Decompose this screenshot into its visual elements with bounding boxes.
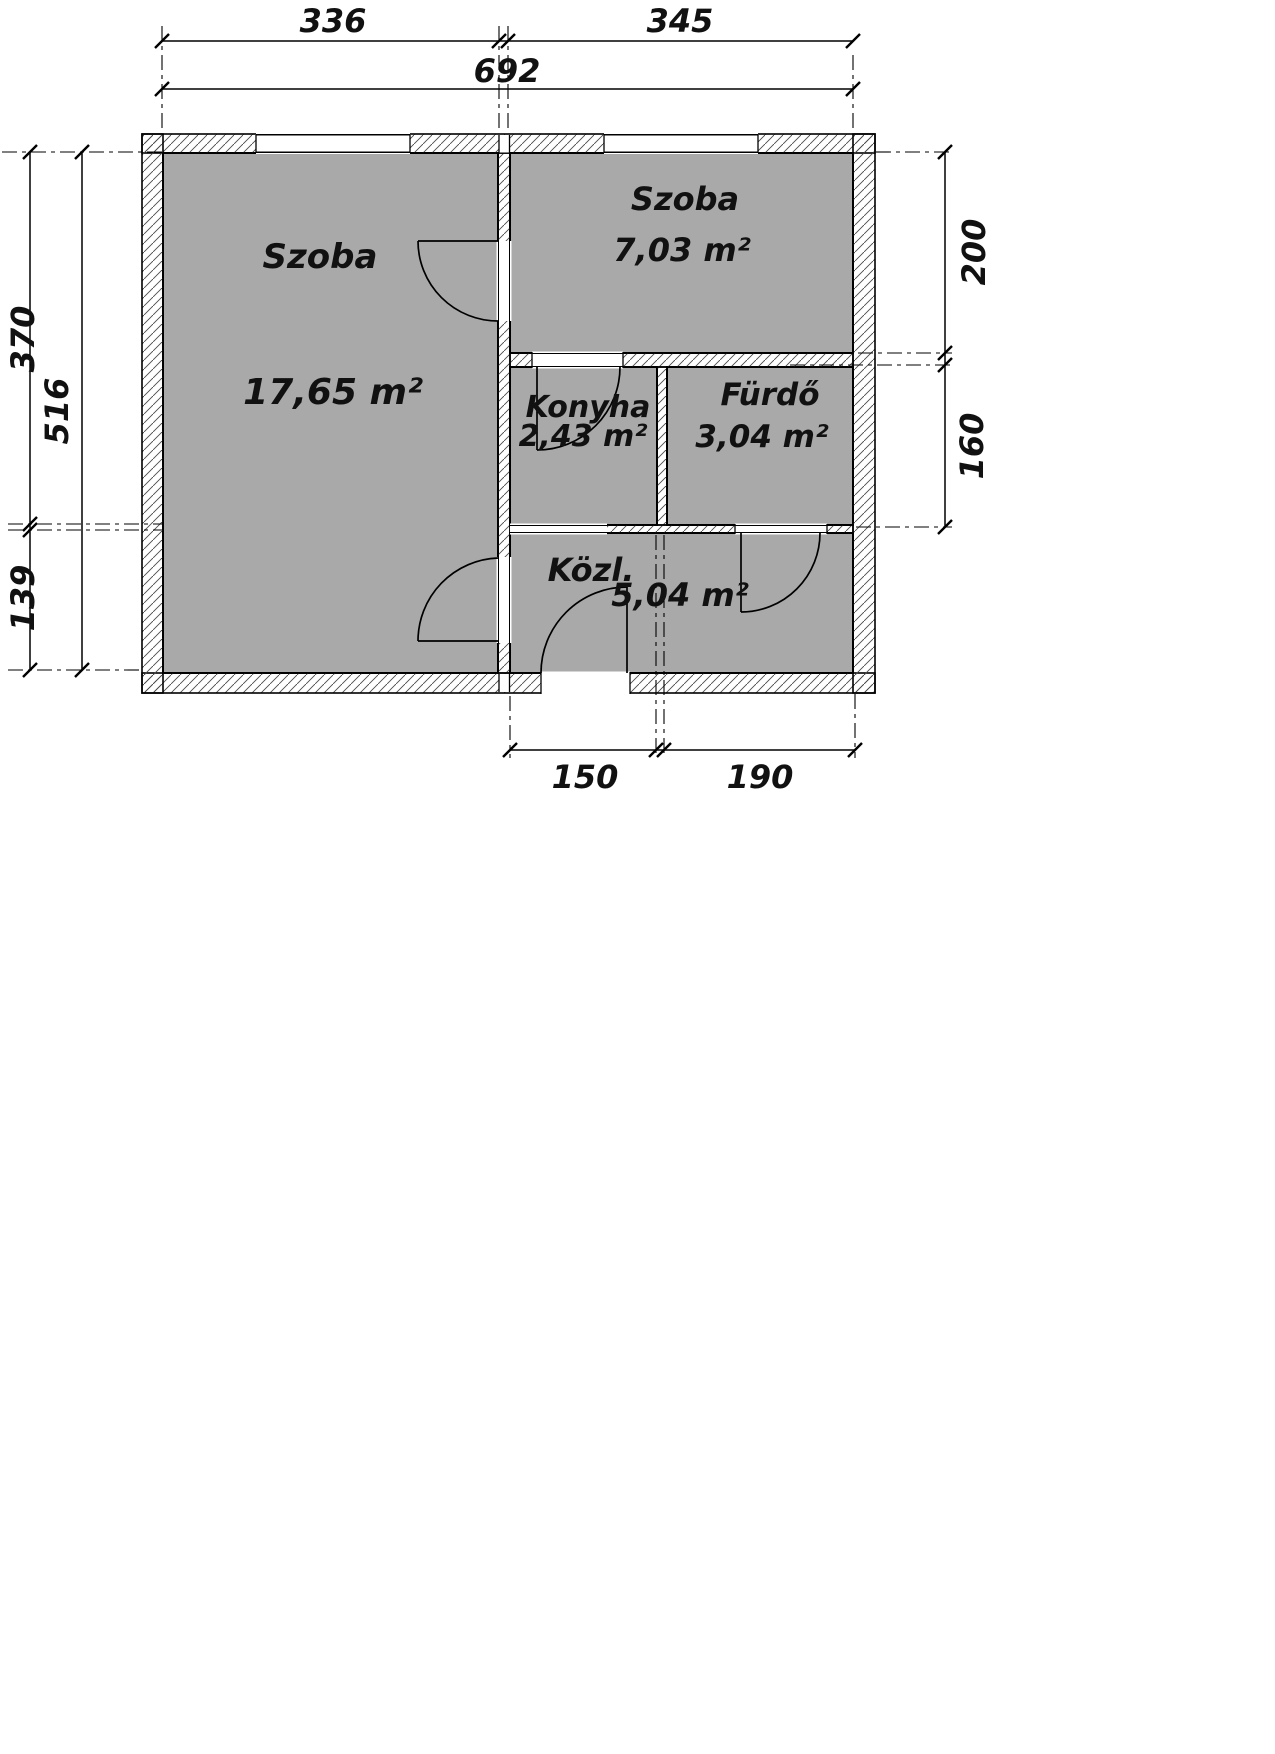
room-szoba-large-area: 17,65 m² bbox=[243, 372, 423, 413]
window-top-right bbox=[604, 133, 758, 154]
window-top-left bbox=[256, 133, 410, 154]
room-szoba-large-floor bbox=[163, 153, 498, 673]
wall-junction-top bbox=[499, 135, 510, 153]
room-konyha-area: 2,43 m² bbox=[519, 419, 648, 454]
dim-left-516: 516 bbox=[38, 378, 76, 445]
wall-exterior-left bbox=[142, 134, 163, 693]
wall-interior-konyha-furdo bbox=[657, 367, 667, 525]
dim-left-139: 139 bbox=[4, 565, 42, 632]
room-szoba-small-label: Szoba bbox=[631, 180, 739, 218]
door-gap-konyha bbox=[532, 352, 623, 369]
door-gap-entry bbox=[541, 672, 630, 695]
dim-bottom-150: 150 bbox=[552, 758, 619, 796]
drawing-page: 336 345 692 370 516 139 200 160 150 190 … bbox=[0, 0, 1275, 1754]
dim-top-345: 345 bbox=[647, 2, 714, 40]
dim-bottom-190: 190 bbox=[727, 758, 794, 796]
dim-right-160: 160 bbox=[953, 413, 991, 480]
room-furdo-label: Fürdő bbox=[720, 377, 819, 413]
dim-top-336: 336 bbox=[300, 2, 367, 40]
wall-exterior-right bbox=[853, 134, 875, 693]
room-szoba-small-area: 7,03 m² bbox=[613, 231, 750, 269]
room-furdo-area: 3,04 m² bbox=[695, 419, 829, 455]
dim-top-692: 692 bbox=[474, 52, 541, 90]
room-kozl-area: 5,04 m² bbox=[611, 576, 748, 614]
dim-left-370: 370 bbox=[4, 306, 42, 373]
wall-junction-bottom bbox=[499, 674, 510, 692]
floor-plan-canvas: 336 345 692 370 516 139 200 160 150 190 … bbox=[0, 0, 1275, 1754]
dim-right-200: 200 bbox=[955, 219, 993, 286]
room-szoba-large-label: Szoba bbox=[263, 237, 378, 277]
